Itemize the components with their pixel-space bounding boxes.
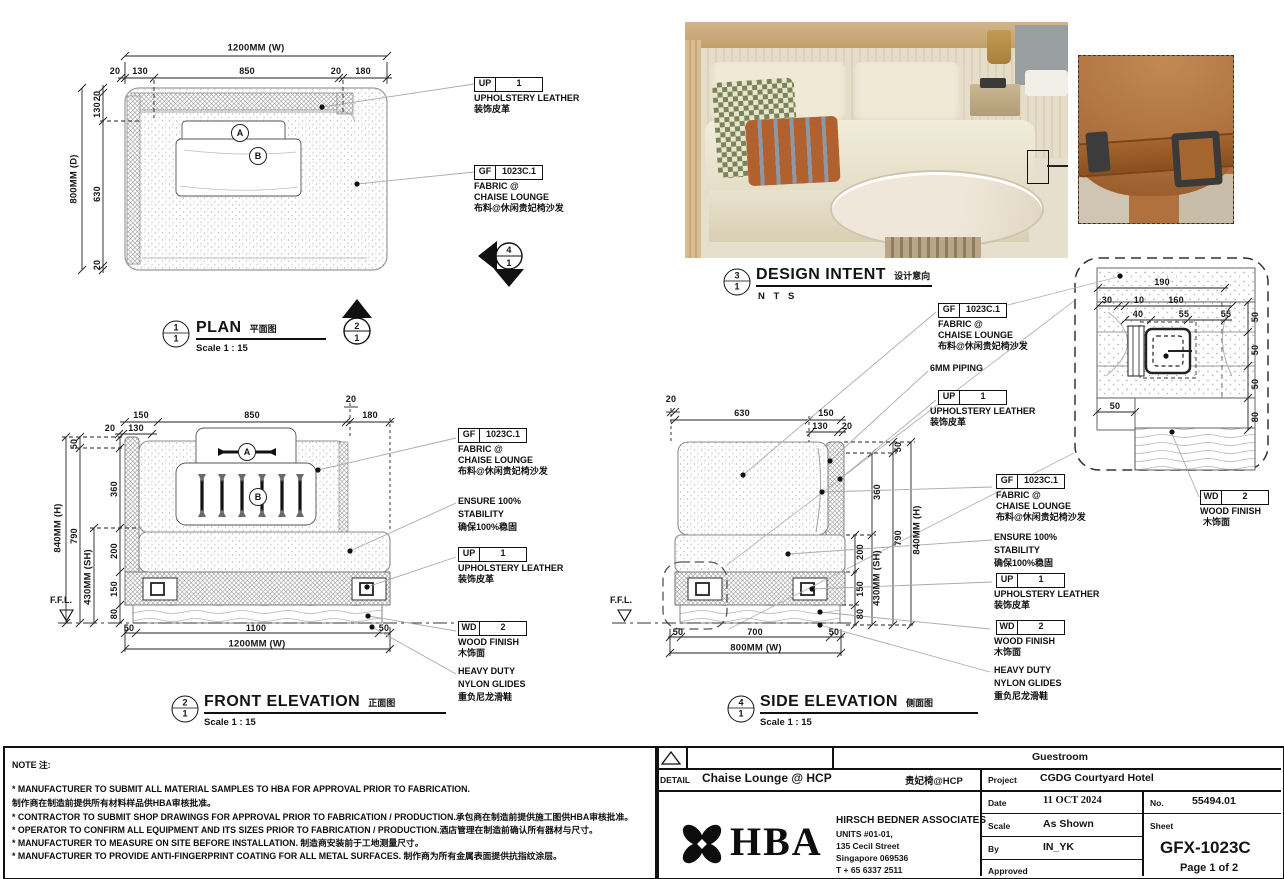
firm-name: HIRSCH BEDNER ASSOCIATES: [836, 815, 986, 826]
callout-stability-text: ENSURE 100%: [458, 496, 521, 507]
callout-gf-tag: GF 1023C.1: [458, 428, 527, 443]
tb-by: IN_YK: [1043, 841, 1074, 853]
side-dim-seat-height: 430MM (SH): [872, 550, 883, 606]
revision-triangle-icon: [660, 750, 682, 766]
callout-stability-text: STABILITY: [458, 509, 504, 520]
callout-up-tag: UP 1: [996, 573, 1065, 588]
photo-lamp: [987, 30, 1011, 64]
notes-heading: NOTE 注:: [12, 758, 51, 771]
detail-dim: 50: [1250, 345, 1260, 355]
front-view-marker: 2 1: [172, 696, 199, 723]
callout-up-text-cn: 装饰皮革: [458, 574, 494, 585]
callout-gf-text: CHAISE LOUNGE: [458, 455, 533, 466]
tb-line: [980, 859, 1142, 860]
section-marker-4-num: 4: [506, 245, 511, 255]
firm-addr: UNITS #01-01,: [836, 829, 893, 839]
front-dim: 50: [69, 439, 79, 449]
side-dim: 50: [829, 627, 839, 637]
callout-up-tag: UP 1: [458, 547, 527, 562]
plan-dim: 20: [92, 91, 102, 101]
callout-wd-tag: WD 2: [1200, 490, 1269, 505]
tb-scale-label: Scale: [988, 821, 1010, 831]
side-dim-overall-height: 840MM (H): [912, 505, 923, 554]
intent-view-marker: 3 1: [724, 269, 751, 296]
photo-wood-panel: [685, 40, 701, 258]
firm-addr: 135 Cecil Street: [836, 841, 899, 851]
front-dim: 50: [379, 623, 389, 633]
callout-gf-text-cn: 布料@休闲贵妃椅沙发: [996, 512, 1086, 523]
detail-dim: 10: [1134, 295, 1144, 305]
callout-wd-text: WOOD FINISH: [458, 637, 519, 648]
plan-dim: 20: [92, 260, 102, 270]
side-dim: 360: [872, 484, 882, 500]
callout-up-text: UPHOLSTERY LEATHER: [994, 589, 1099, 600]
note-line: * MANUFACTURER TO PROVIDE ANTI-FINGERPRI…: [12, 849, 562, 862]
side-scale: Scale 1 : 15: [760, 717, 812, 728]
callout-stability-text: ENSURE 100%: [994, 532, 1057, 543]
tb-line: [1142, 790, 1144, 876]
tb-detail-title: Chaise Lounge @ HCP: [702, 771, 832, 785]
tb-sheet-label: Sheet: [1150, 821, 1173, 831]
front-dim: 80: [109, 609, 119, 619]
callout-glides-text: NYLON GLIDES: [994, 678, 1062, 689]
callout-gf-text: CHAISE LOUNGE: [938, 330, 1013, 341]
callout-gf-tag: GF 1023C.1: [996, 474, 1065, 489]
ffl-label: F.F.L.: [50, 595, 72, 605]
callout-glides-text: HEAVY DUTY: [458, 666, 515, 677]
callout-gf-text: FABRIC @: [996, 490, 1041, 501]
callout-up-text: UPHOLSTERY LEATHER: [474, 93, 579, 104]
side-dim: 700: [747, 627, 763, 637]
design-intent-photo: [685, 22, 1068, 258]
intent-scale: N T S: [758, 291, 797, 302]
detail-dim: 55: [1221, 309, 1231, 319]
side-dim: 150: [818, 408, 834, 418]
callout-gf-text: FABRIC @: [458, 444, 503, 455]
callout-gf-text: CHAISE LOUNGE: [474, 192, 549, 203]
front-dim: 790: [69, 528, 79, 544]
tb-line: [686, 746, 688, 768]
front-dim: 1100: [246, 623, 266, 633]
detail-dim: 55: [1179, 309, 1189, 319]
section-marker-4-ref: 1: [506, 258, 511, 268]
tb-page: Page 1 of 2: [1180, 862, 1238, 874]
callout-up-text: UPHOLSTERY LEATHER: [458, 563, 563, 574]
callout-wd-text-cn: 木饰面: [1203, 517, 1230, 528]
photo-back-cushion-right: [853, 62, 961, 128]
tb-project: CGDG Courtyard Hotel: [1040, 772, 1154, 784]
callout-wd-text-cn: 木饰面: [458, 648, 485, 659]
plan-dim-overall-depth: 800MM (D): [69, 154, 80, 203]
photo-bed: [1025, 70, 1068, 96]
front-dim: 150: [109, 581, 119, 597]
section-marker-2-num: 2: [354, 321, 359, 331]
tb-line: [655, 768, 1281, 770]
front-dim-overall-height: 840MM (H): [53, 503, 64, 552]
photo-detail-callout-line: [1047, 165, 1068, 167]
photo-detail-callout-box: [1027, 150, 1049, 184]
section-marker-2-ref: 1: [354, 333, 359, 343]
front-dim: 180: [362, 410, 378, 420]
callout-stability-text-cn: 确保100%稳固: [994, 558, 1053, 569]
note-line: * MANUFACTURER TO MEASURE ON SITE BEFORE…: [12, 836, 424, 849]
callout-up-tag: UP 1: [938, 390, 1007, 405]
detail-dim: 50: [1110, 401, 1120, 411]
side-dim: 790: [893, 530, 903, 546]
side-view-marker: 4 1: [728, 696, 755, 723]
callout-glides-text: HEAVY DUTY: [994, 665, 1051, 676]
note-line: 制作商在制造前提供所有材料样品供HBA审核批准。: [12, 796, 216, 809]
photo-nightstand: [970, 84, 1020, 116]
tb-detail-label: DETAIL: [660, 775, 690, 785]
front-dim: 150: [133, 410, 149, 420]
plan-dim: 850: [239, 66, 255, 76]
plan-dim: 20: [331, 66, 341, 76]
leather-detail-photo: [1078, 55, 1234, 224]
callout-up-tag: UP 1: [474, 77, 543, 92]
callout-stability-text-cn: 确保100%稳固: [458, 522, 517, 533]
callout-glides-text: NYLON GLIDES: [458, 679, 526, 690]
side-dim: 50: [673, 627, 683, 637]
plan-scale: Scale 1 : 15: [196, 343, 248, 354]
callout-wd-text: WOOD FINISH: [1200, 506, 1261, 517]
front-dim-seat-height: 430MM (SH): [83, 549, 94, 605]
callout-up-text: UPHOLSTERY LEATHER: [930, 406, 1035, 417]
photo-buckle-left: [1085, 131, 1110, 173]
callout-up-text-cn: 装饰皮革: [474, 104, 510, 115]
front-dim: 200: [109, 543, 119, 559]
front-dim: 20: [346, 394, 356, 404]
hba-logo-text: HBA: [730, 818, 823, 865]
callout-gf-text: FABRIC @: [938, 319, 983, 330]
plan-dim: 130: [92, 102, 102, 118]
tb-no: 55494.01: [1192, 795, 1236, 807]
front-scale: Scale 1 : 15: [204, 717, 256, 728]
callout-gf-tag: GF 1023C.1: [474, 165, 543, 180]
note-line: * OPERATOR TO CONFIRM ALL EQUIPMENT AND …: [12, 823, 598, 836]
callout-wd-tag: WD 2: [996, 620, 1065, 635]
side-dim: 630: [734, 408, 750, 418]
photo-table-base: [885, 237, 981, 258]
pillow-a-label: A: [238, 443, 256, 461]
tb-approved-label: Approved: [988, 866, 1028, 876]
callout-piping-text: 6MM PIPING: [930, 363, 983, 374]
tb-project-label: Project: [988, 775, 1017, 785]
side-dim: 130: [812, 421, 828, 431]
callout-gf-text: FABRIC @: [474, 181, 519, 192]
tb-no-label: No.: [1150, 798, 1164, 808]
front-title: FRONT ELEVATION 正面图: [204, 693, 446, 714]
callout-wd-text-cn: 木饰面: [994, 647, 1021, 658]
tb-line: [832, 746, 834, 768]
tb-room: Guestroom: [1032, 751, 1088, 763]
callout-glides-text-cn: 重负尼龙滑鞋: [458, 692, 512, 703]
tb-date-label: Date: [988, 798, 1006, 808]
tb-date: 11 OCT 2024: [1043, 795, 1102, 806]
tb-sheet-number: GFX-1023C: [1160, 838, 1251, 858]
pillow-a-label: A: [231, 124, 249, 142]
photo-telephone: [980, 78, 1006, 88]
detail-dim: 50: [1250, 312, 1260, 322]
callout-gf-text-cn: 布料@休闲贵妃椅沙发: [474, 203, 564, 214]
front-dim: 50: [124, 623, 134, 633]
tb-scale: As Shown: [1043, 818, 1094, 830]
note-line: * MANUFACTURER TO SUBMIT ALL MATERIAL SA…: [12, 784, 470, 794]
side-dim: 200: [855, 544, 865, 560]
plan-dim: 180: [355, 66, 371, 76]
side-title: SIDE ELEVATION 侧面图: [760, 693, 978, 714]
plan-title: PLAN 平面图: [196, 319, 326, 340]
detail-dim: 190: [1154, 277, 1170, 287]
detail-dim: 50: [1250, 379, 1260, 389]
tb-line: [655, 790, 1281, 792]
plan-dim: 630: [92, 186, 102, 202]
callout-gf-text-cn: 布料@休闲贵妃椅沙发: [458, 466, 548, 477]
callout-stability-text: STABILITY: [994, 545, 1040, 556]
ffl-label: F.F.L.: [610, 595, 632, 605]
callout-gf-text-cn: 布料@休闲贵妃椅沙发: [938, 341, 1028, 352]
callout-wd-text: WOOD FINISH: [994, 636, 1055, 647]
detail-dim: 30: [1102, 295, 1112, 305]
front-dim: 20: [105, 423, 115, 433]
front-dim: 130: [128, 423, 144, 433]
plan-dim: 20: [110, 66, 120, 76]
side-dim-overall-width: 800MM (W): [730, 643, 781, 654]
callout-up-text-cn: 装饰皮革: [994, 600, 1030, 611]
hba-logo-icon: [676, 818, 728, 870]
drawing-sheet: 1200MM (W) 20 130 850 20 180 800MM (D) 2…: [0, 0, 1284, 879]
tb-by-label: By: [988, 844, 999, 854]
front-dim: 360: [109, 481, 119, 497]
side-dim: 150: [855, 581, 865, 597]
photo-pillow-rust: [745, 116, 840, 187]
side-dim: 80: [855, 609, 865, 619]
callout-gf-tag: GF 1023C.1: [938, 303, 1007, 318]
tb-line: [980, 813, 1281, 814]
tb-line: [980, 836, 1142, 837]
note-line: * CONTRACTOR TO SUBMIT SHOP DRAWINGS FOR…: [12, 810, 633, 823]
front-dim-overall-width: 1200MM (W): [229, 639, 286, 650]
pillow-b-label: B: [249, 147, 267, 165]
callout-glides-text-cn: 重负尼龙滑鞋: [994, 691, 1048, 702]
side-dim: 50: [893, 442, 903, 452]
detail-dim: 160: [1168, 295, 1184, 305]
callout-up-text-cn: 装饰皮革: [930, 417, 966, 428]
callout-wd-tag: WD 2: [458, 621, 527, 636]
photo-buckle-right: [1171, 130, 1223, 187]
firm-addr: T + 65 6337 2511: [836, 865, 902, 875]
plan-dim: 130: [132, 66, 148, 76]
pillow-b-label: B: [249, 488, 267, 506]
side-dim: 20: [666, 394, 676, 404]
detail-dim: 80: [1250, 412, 1260, 422]
tb-detail-title-cn: 贵妃椅@HCP: [905, 773, 963, 787]
plan-view-marker: 1 1: [163, 321, 190, 348]
callout-gf-text: CHAISE LOUNGE: [996, 501, 1071, 512]
firm-addr: Singapore 069536: [836, 853, 908, 863]
intent-title: DESIGN INTENT 设计意向: [756, 266, 932, 287]
plan-dim-overall-width: 1200MM (W): [228, 43, 285, 54]
front-dim: 850: [244, 410, 260, 420]
detail-dim: 40: [1133, 309, 1143, 319]
side-dim: 20: [842, 421, 852, 431]
